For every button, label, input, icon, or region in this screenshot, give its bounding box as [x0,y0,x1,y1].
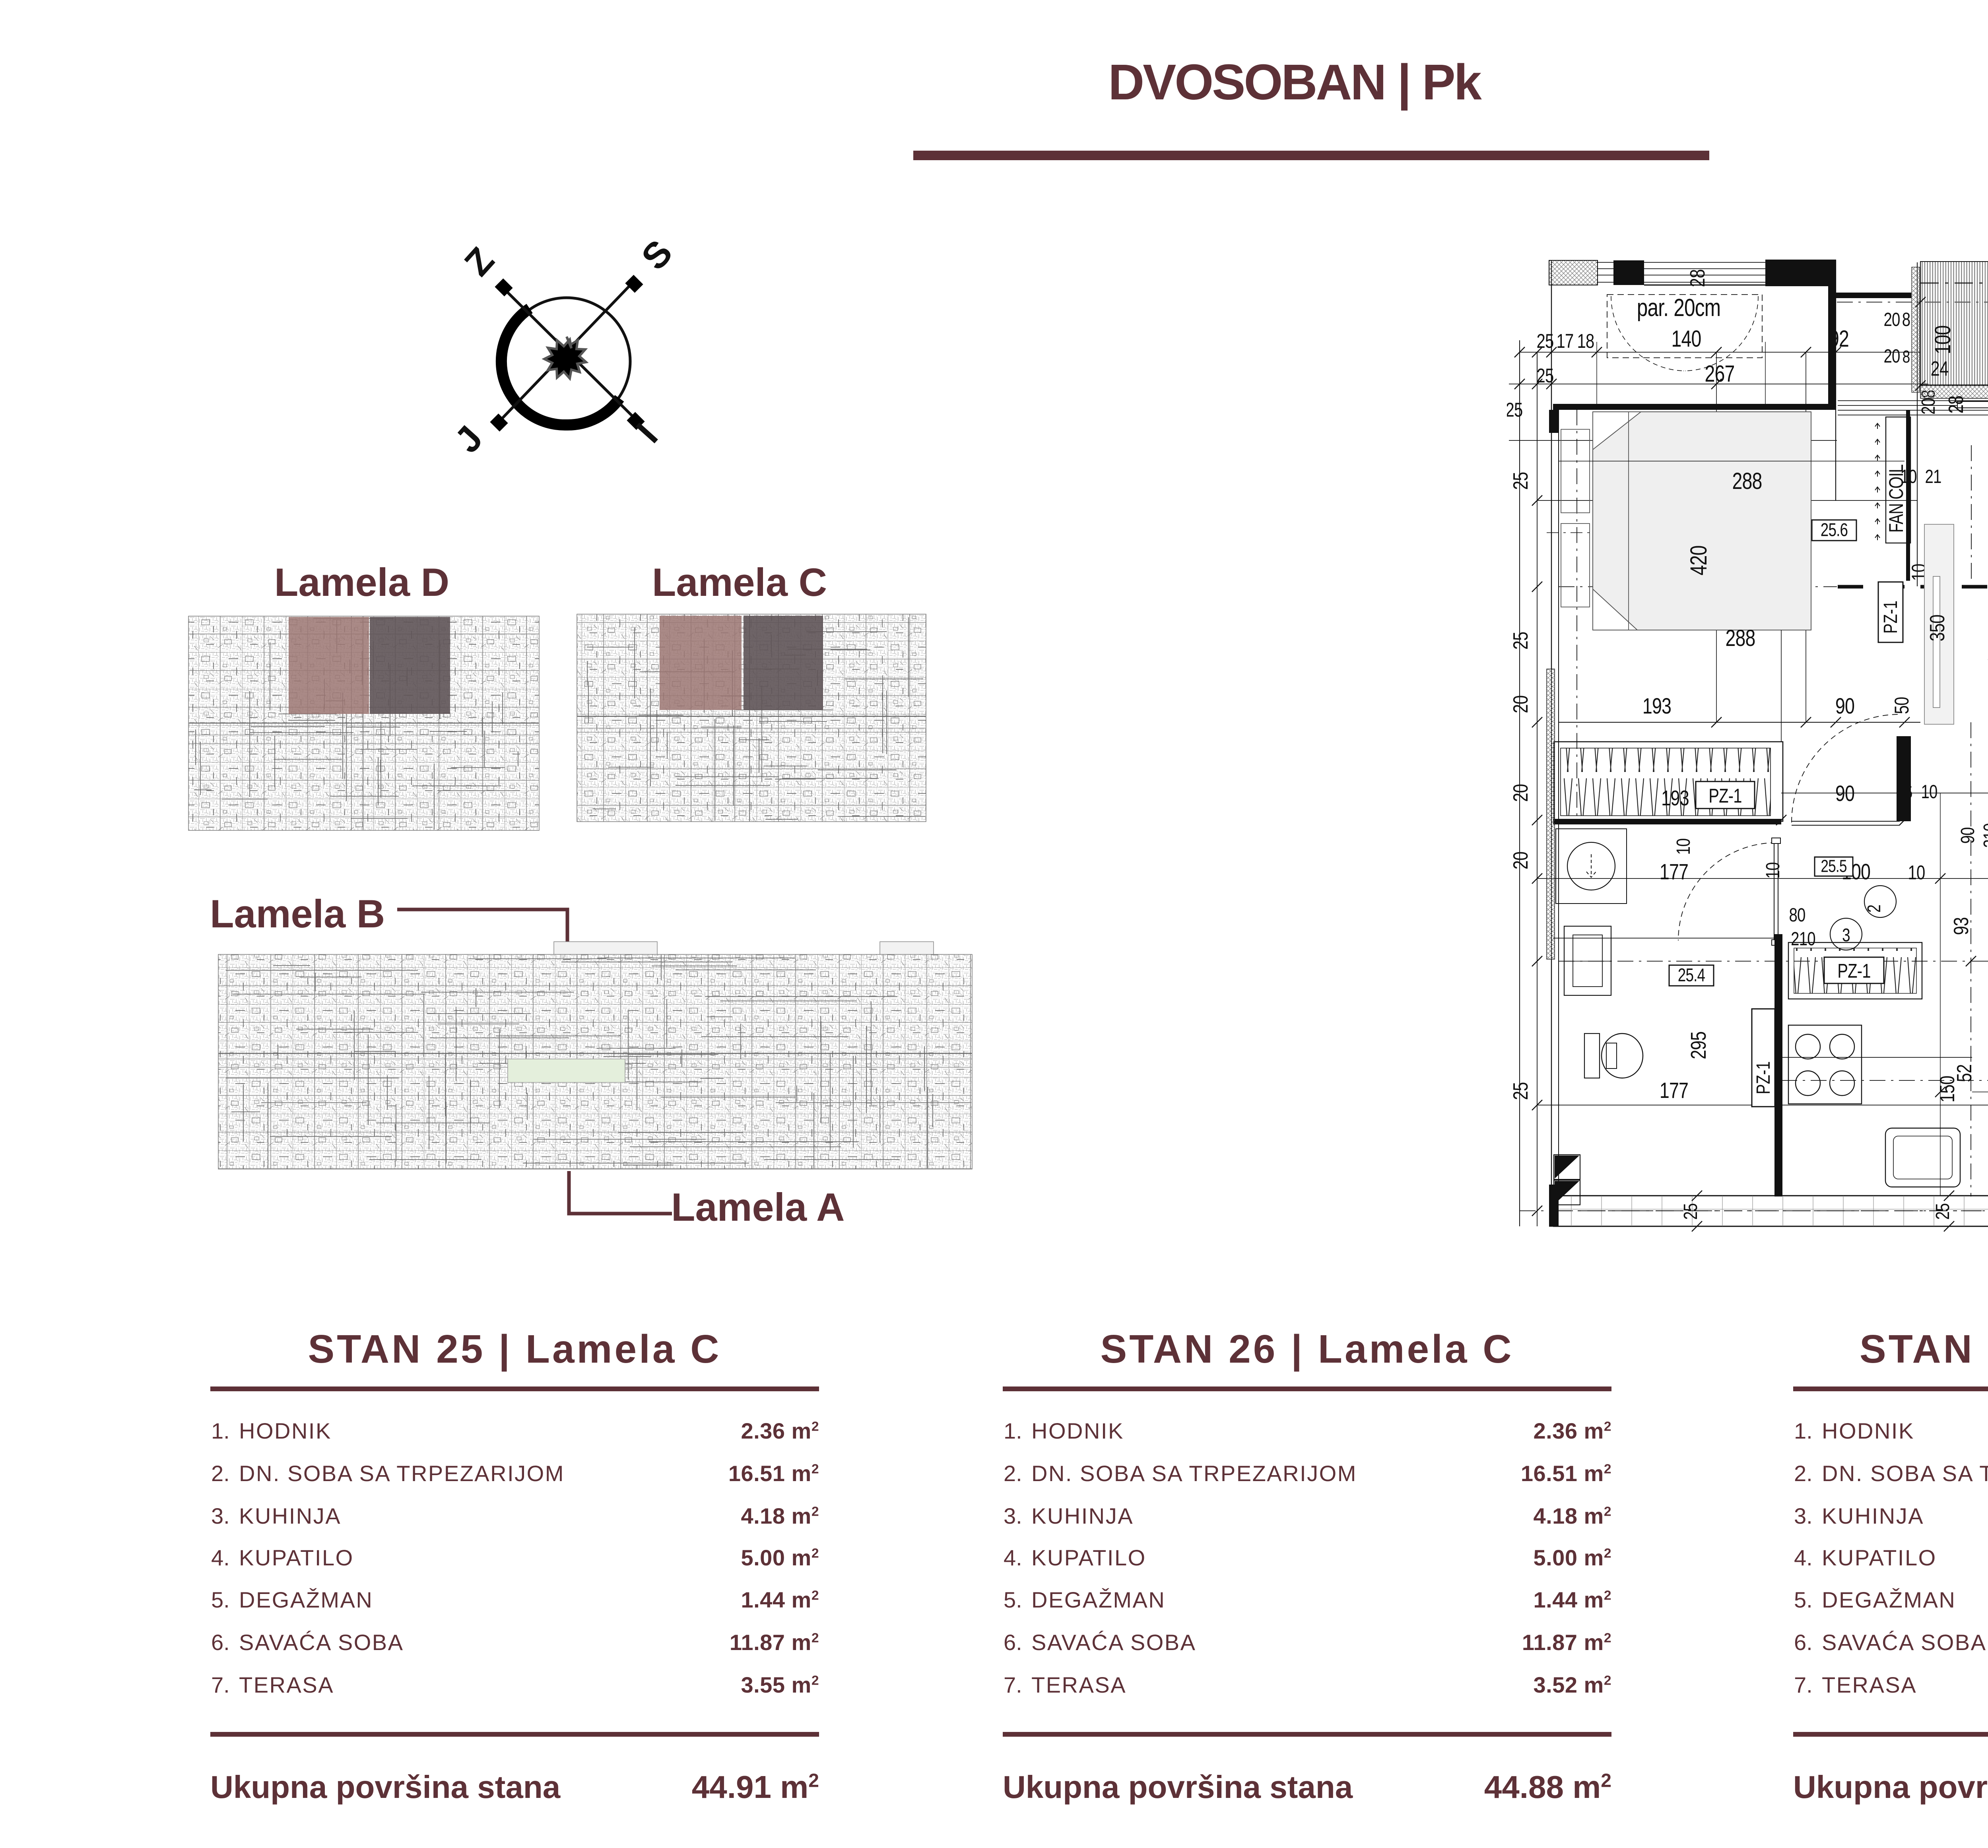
svg-text:295: 295 [1687,1032,1711,1059]
svg-text:100: 100 [1930,326,1955,354]
svg-text:20: 20 [1509,852,1532,870]
svg-text:52: 52 [1953,1065,1976,1082]
svg-text:PZ-1: PZ-1 [1837,960,1870,982]
svg-text:80: 80 [1789,905,1805,926]
svg-text:90: 90 [1835,693,1854,718]
svg-text:PZ-1: PZ-1 [1708,785,1741,807]
svg-text:420: 420 [1686,545,1712,575]
svg-text:8: 8 [1903,347,1910,366]
svg-text:20: 20 [1509,696,1532,714]
svg-text:18: 18 [1577,330,1594,352]
svg-text:J: J [449,418,491,460]
svg-text:24: 24 [1931,357,1949,380]
svg-text:25: 25 [1680,1203,1701,1220]
svg-text:25: 25 [1509,472,1532,490]
svg-text:10: 10 [1763,862,1784,878]
svg-text:28: 28 [1944,396,1968,414]
svg-text:25: 25 [1509,1082,1532,1100]
svg-text:93: 93 [1949,917,1973,935]
svg-text:par. 20cm: par. 20cm [1637,294,1721,322]
svg-text:25.5: 25.5 [1821,857,1846,876]
svg-text:17: 17 [1557,330,1574,352]
svg-text:193: 193 [1642,693,1671,718]
svg-text:S: S [634,239,680,277]
svg-text:I: I [629,416,666,450]
svg-text:177: 177 [1660,859,1688,884]
svg-text:50: 50 [1891,697,1913,714]
svg-text:21: 21 [1925,466,1941,487]
svg-text:25: 25 [1509,632,1532,650]
svg-text:2: 2 [1864,905,1884,913]
svg-text:20: 20 [1883,346,1900,367]
svg-text:25: 25 [1507,399,1522,421]
svg-text:20: 20 [1509,784,1532,802]
svg-text:8: 8 [1902,309,1910,330]
svg-text:90: 90 [1835,781,1854,806]
svg-text:92: 92 [1829,326,1849,352]
svg-text:210: 210 [1791,929,1815,950]
svg-text:Z: Z [457,240,502,283]
svg-text:288: 288 [1732,468,1762,494]
svg-text:25.4: 25.4 [1678,965,1705,985]
svg-text:350: 350 [1926,615,1949,641]
svg-text:140: 140 [1671,326,1701,352]
svg-text:267: 267 [1705,361,1734,387]
svg-text:20: 20 [1883,309,1900,330]
svg-text:25: 25 [1537,330,1554,352]
svg-text:10: 10 [1908,861,1925,884]
svg-text:288: 288 [1725,625,1755,651]
svg-text:PZ-1: PZ-1 [1880,601,1901,634]
svg-text:177: 177 [1660,1078,1688,1103]
svg-text:28: 28 [1686,270,1709,287]
svg-text:5: 5 [1905,783,1912,802]
svg-text:25: 25 [1537,365,1554,387]
svg-text:PZ-1: PZ-1 [1753,1061,1774,1094]
svg-text:10: 10 [1673,838,1694,855]
svg-text:90: 90 [1957,827,1978,844]
svg-text:25.6: 25.6 [1821,520,1848,540]
svg-text:210: 210 [1980,823,1988,848]
svg-text:193: 193 [1661,787,1689,811]
svg-text:25: 25 [1932,1203,1953,1220]
svg-text:10: 10 [1921,781,1937,803]
